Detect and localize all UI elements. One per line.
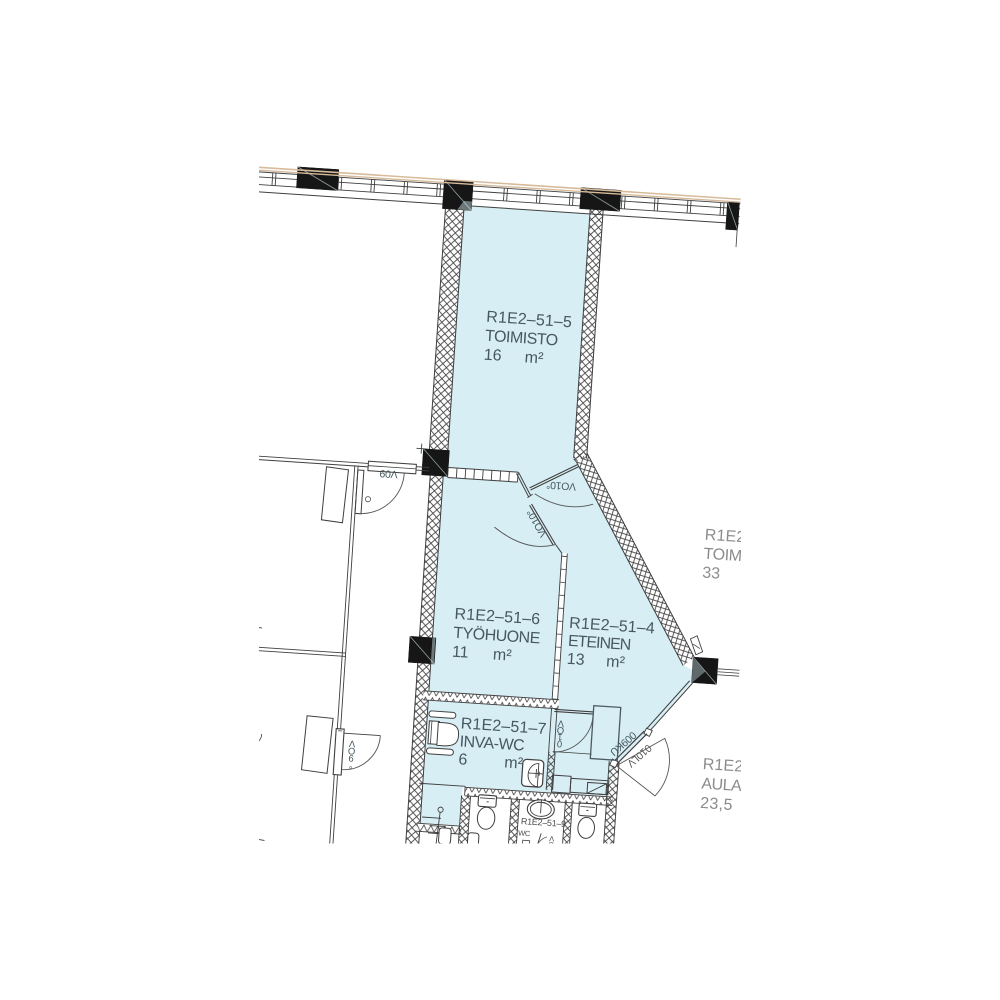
svg-text:13: 13 bbox=[566, 651, 585, 669]
svg-text:m²: m² bbox=[492, 646, 512, 664]
svg-text:33: 33 bbox=[702, 565, 721, 583]
svg-text:AULA: AULA bbox=[701, 775, 743, 795]
svg-text:VO10°: VO10° bbox=[546, 479, 576, 493]
svg-text:16: 16 bbox=[483, 347, 502, 365]
svg-text:23,5: 23,5 bbox=[700, 795, 734, 814]
svg-text:0: 0 bbox=[557, 738, 563, 749]
svg-text:m²: m² bbox=[524, 349, 544, 367]
svg-text:m²: m² bbox=[504, 754, 524, 772]
svg-text:m²: m² bbox=[606, 653, 626, 671]
svg-text:6: 6 bbox=[458, 751, 468, 769]
svg-text:WC: WC bbox=[518, 828, 531, 838]
svg-text:11: 11 bbox=[451, 644, 469, 662]
svg-text:V09: V09 bbox=[379, 467, 398, 480]
